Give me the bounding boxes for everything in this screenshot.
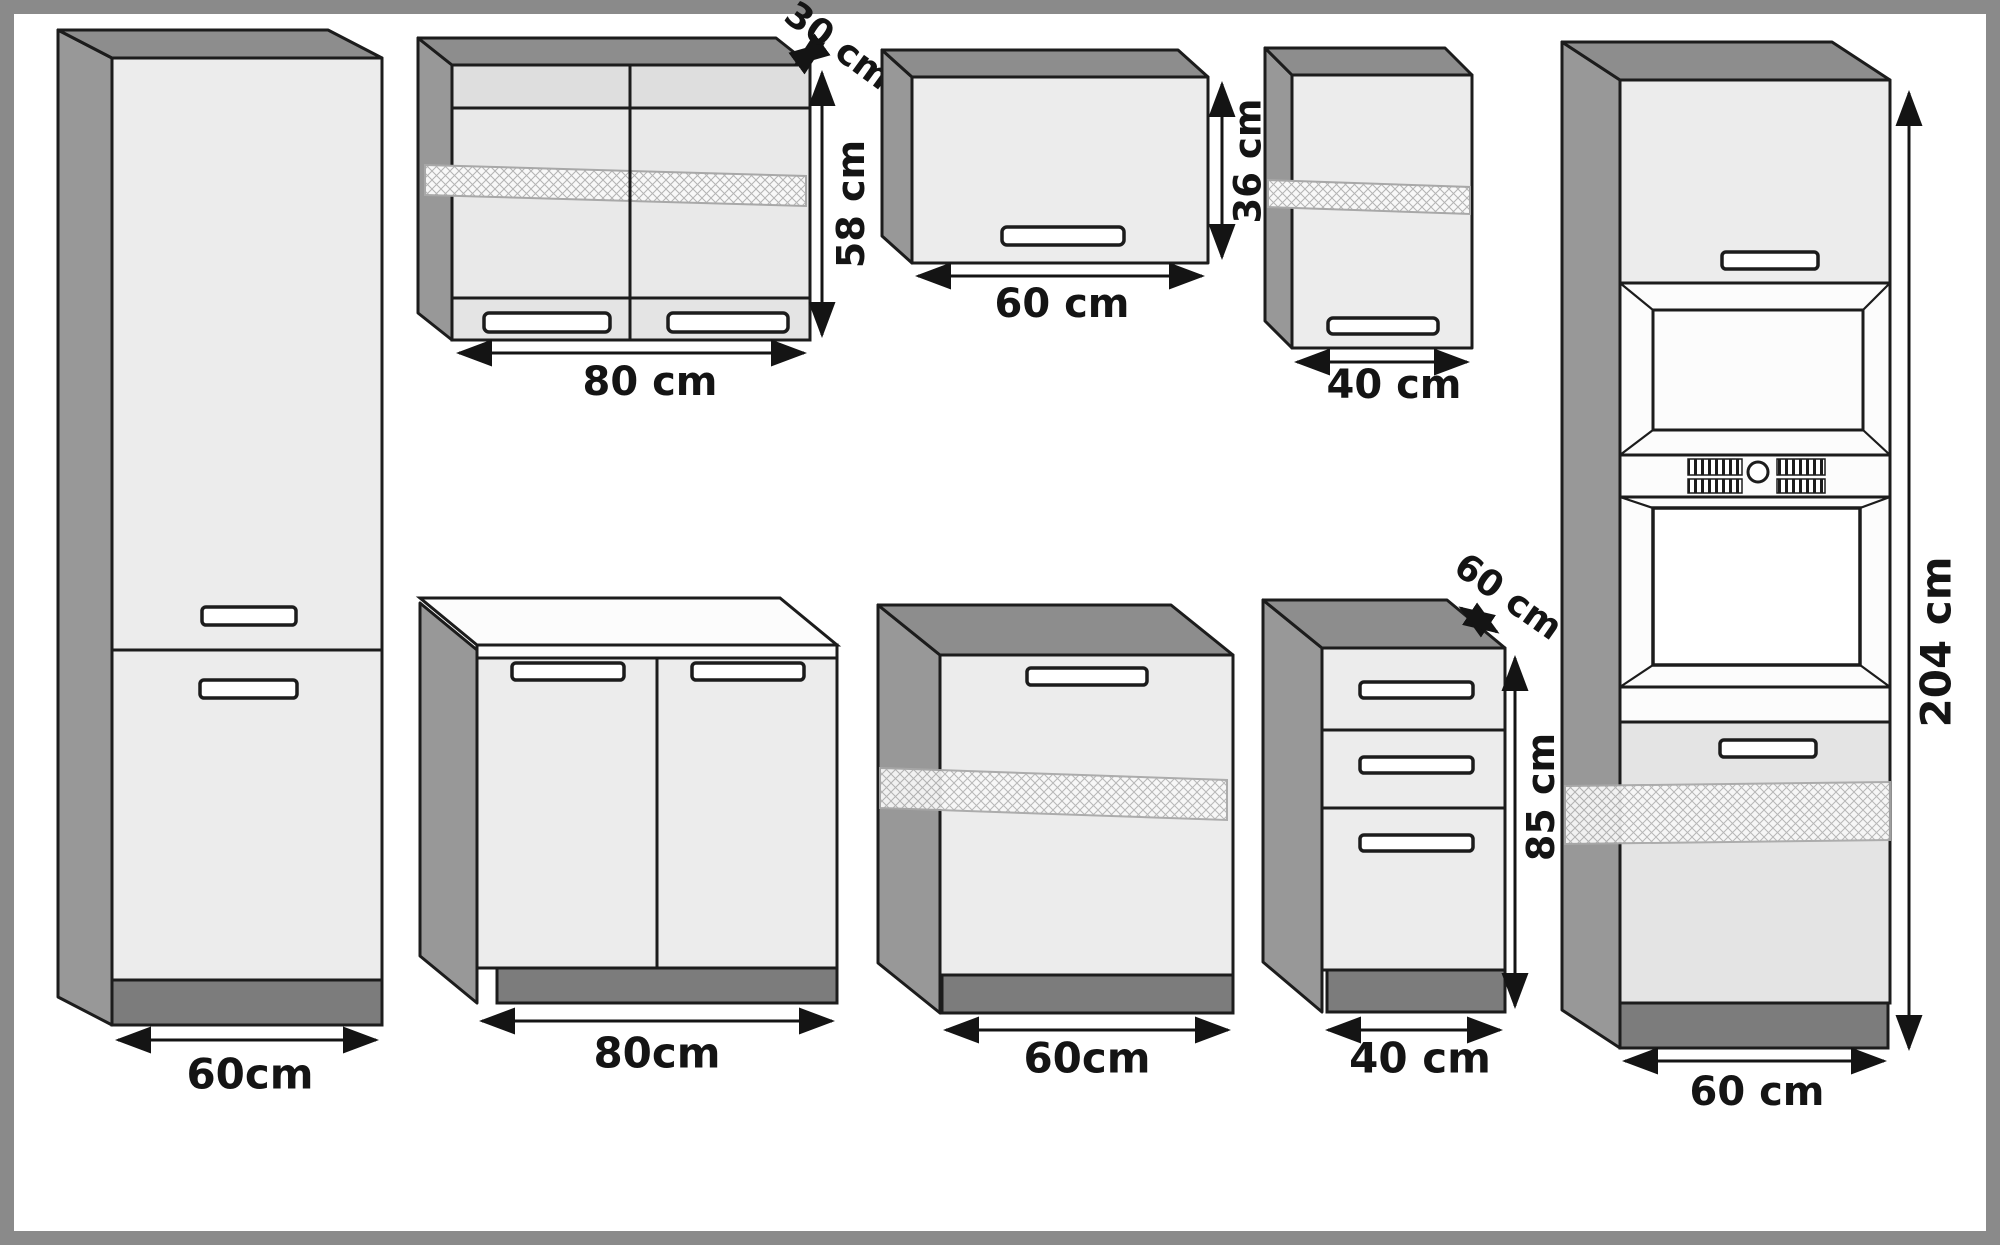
- oven-lower-door-handle: [1720, 740, 1816, 757]
- drawer40-width-label: 40 cm: [1349, 1034, 1491, 1083]
- oven-opening: [1653, 508, 1860, 665]
- wall60-side-panel: [882, 50, 912, 263]
- oven-side-panel: [1562, 42, 1620, 1048]
- wall80-height-label: 58 cm: [829, 140, 873, 268]
- diagram-canvas: 60cm 80 cm 58 cm 30 cm 60 cm 36 cm: [0, 0, 2000, 1245]
- drawer40-handle-3: [1360, 835, 1473, 851]
- vent-grille-right-top: [1777, 459, 1825, 475]
- vent-knob-circle: [1748, 462, 1768, 482]
- wall80-left-handle: [484, 313, 610, 332]
- tall-left-width-label: 60cm: [186, 1050, 313, 1099]
- oven-plinth: [1620, 1003, 1888, 1048]
- drawer40-handle-1: [1360, 682, 1473, 698]
- oven-height-label: 204 cm: [1912, 557, 1961, 728]
- tall-left-doors: [112, 58, 382, 980]
- base80-plinth: [497, 968, 837, 1003]
- base60-top-panel: [878, 605, 1233, 655]
- microwave-niche-opening: [1653, 310, 1863, 430]
- drawer40-handle-2: [1360, 757, 1473, 773]
- wall60-width-label: 60 cm: [995, 281, 1130, 327]
- wall40-width-label: 40 cm: [1327, 362, 1462, 408]
- vent-grille-left-top: [1688, 459, 1742, 475]
- wall80-right-handle: [668, 313, 788, 332]
- base60-plinth: [942, 975, 1233, 1013]
- base80-right-handle: [692, 663, 804, 680]
- tall-left-top-panel: [58, 30, 382, 58]
- wall80-width-label: 80 cm: [583, 359, 718, 405]
- oven-top-door-handle: [1722, 252, 1818, 269]
- oven-rail-band: [1620, 687, 1890, 722]
- tall-left-lower-handle: [200, 680, 297, 698]
- wall80-top-panel: [418, 38, 810, 65]
- base80-width-label: 80cm: [593, 1029, 720, 1078]
- tall-cabinet-left: 60cm: [58, 30, 382, 1099]
- base80-worktop-top: [420, 598, 837, 645]
- base80-side-panel: [420, 603, 477, 1003]
- wall60-top-panel: [882, 50, 1208, 77]
- drawer40-plinth: [1327, 970, 1505, 1012]
- oven-lower-door: [1620, 722, 1890, 1003]
- base60-width-label: 60cm: [1023, 1034, 1150, 1083]
- cabinet-diagram: 60cm 80 cm 58 cm 30 cm 60 cm 36 cm: [0, 0, 2000, 1245]
- wall40-top-panel: [1265, 48, 1472, 75]
- vent-grille-left-bottom: [1688, 479, 1742, 493]
- oven-internal-shelf: [1565, 782, 1890, 844]
- tall-left-upper-handle: [202, 607, 296, 625]
- drawer40-side-panel: [1263, 600, 1322, 1012]
- wall60-height-label: 36 cm: [1227, 99, 1270, 224]
- wall40-shelf: [1268, 180, 1470, 214]
- wall60-handle: [1002, 227, 1124, 245]
- base80-worktop-edge: [477, 645, 837, 658]
- base60-handle: [1027, 668, 1147, 685]
- drawer40-height-label: 85 cm: [1519, 733, 1563, 861]
- oven-width-label: 60 cm: [1690, 1069, 1825, 1115]
- wall40-handle: [1328, 318, 1438, 334]
- base80-left-handle: [512, 663, 624, 680]
- tall-left-plinth: [112, 980, 382, 1025]
- vent-grille-right-bottom: [1777, 479, 1825, 493]
- tall-left-side-panel: [58, 30, 112, 1025]
- oven-top-panel: [1562, 42, 1890, 80]
